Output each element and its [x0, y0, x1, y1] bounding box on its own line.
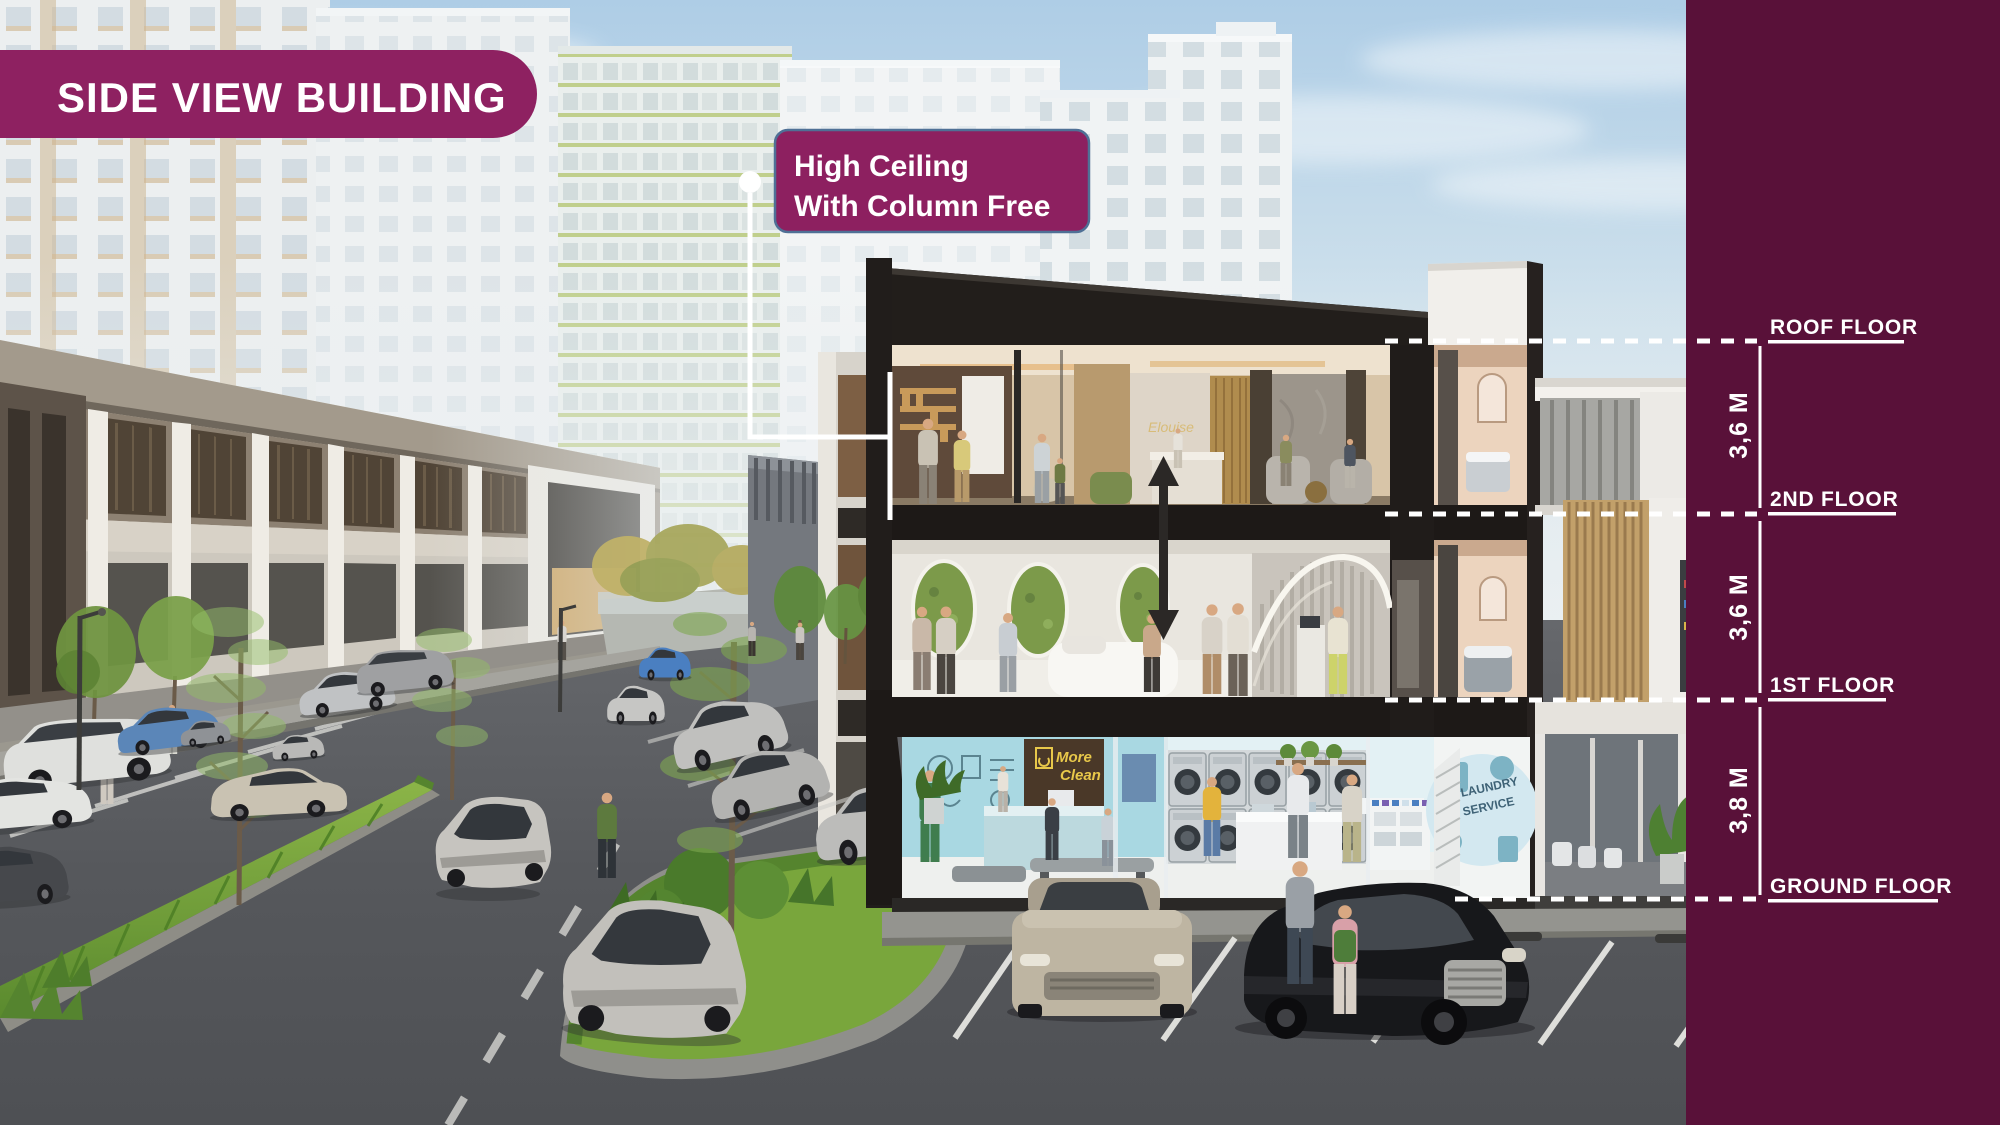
svg-text:With Column Free: With Column Free: [794, 190, 1050, 223]
svg-text:More: More: [1056, 749, 1092, 766]
svg-text:Clean: Clean: [1060, 767, 1101, 784]
svg-text:2ND FLOOR: 2ND FLOOR: [1770, 488, 1899, 511]
svg-text:ROOF FLOOR: ROOF FLOOR: [1770, 316, 1918, 339]
svg-text:1ST FLOOR: 1ST FLOOR: [1770, 674, 1895, 697]
svg-text:GROUND FLOOR: GROUND FLOOR: [1770, 875, 1952, 898]
svg-text:Elouise: Elouise: [1148, 419, 1194, 435]
svg-text:3,6 M: 3,6 M: [1725, 573, 1753, 641]
svg-text:SIDE VIEW BUILDING: SIDE VIEW BUILDING: [57, 74, 507, 121]
svg-text:3,8 M: 3,8 M: [1725, 766, 1753, 834]
svg-text:High Ceiling: High Ceiling: [794, 150, 969, 183]
svg-text:3,6 M: 3,6 M: [1725, 391, 1753, 459]
